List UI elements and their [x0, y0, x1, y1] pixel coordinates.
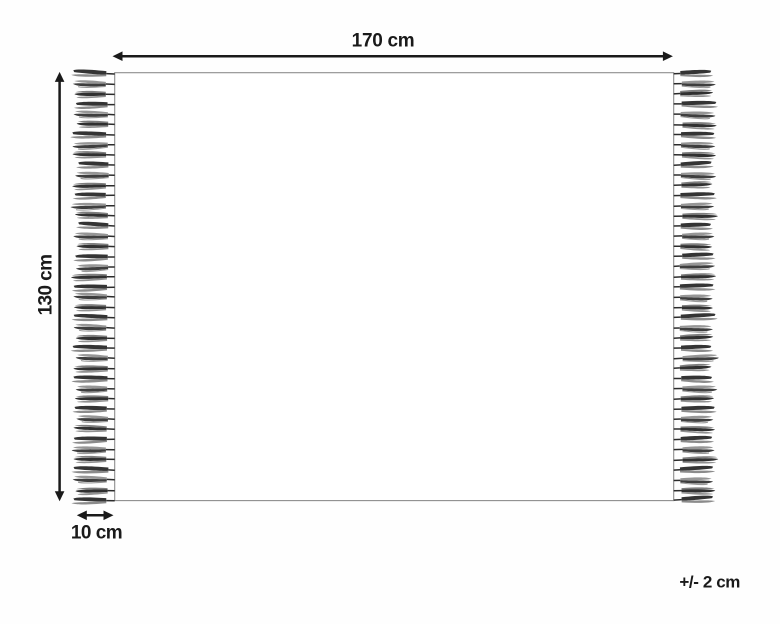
svg-text:130 cm: 130 cm — [36, 255, 57, 316]
svg-text:170 cm: 170 cm — [352, 31, 415, 52]
svg-text:10 cm: 10 cm — [71, 523, 122, 544]
svg-text:+/- 2 cm: +/- 2 cm — [679, 573, 740, 592]
